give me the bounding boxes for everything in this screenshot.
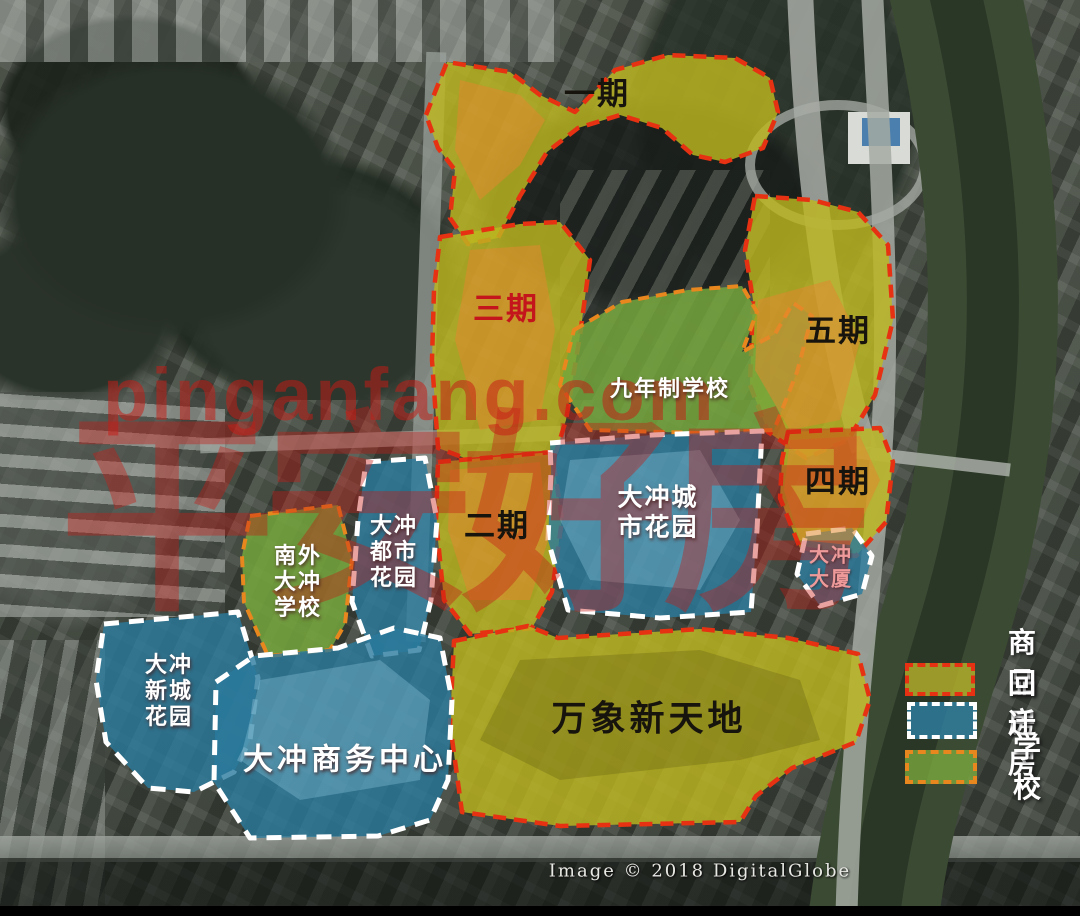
zone-label-phase1: 一期	[564, 77, 630, 114]
imagery-credit: Image © 2018 DigitalGlobe	[549, 861, 851, 882]
satellite-map: pinganfang.com 平安好房 一期 三期 五期 九年制学校 二期 大冲…	[0, 0, 1080, 916]
zone-label-business-center: 大冲商务中心	[243, 742, 447, 777]
bottom-black-bar	[0, 906, 1080, 916]
legend-label-school: 学校	[1013, 726, 1043, 806]
legend-swatch-commodity	[905, 663, 975, 696]
legend-swatch-school	[905, 750, 977, 784]
zone-label-phase2: 二期	[464, 509, 530, 546]
zone-label-mixc-world: 万象新天地	[551, 698, 746, 739]
zone-label-nanwai-school: 南外 大冲 学校	[274, 543, 322, 621]
mottle-business-center	[240, 660, 430, 800]
zone-label-city-garden: 大冲城 市花园	[617, 484, 698, 543]
zone-label-phase5: 五期	[805, 314, 871, 351]
zone-label-newtown-garden: 大冲 新城 花园	[145, 652, 193, 730]
legend-swatch-relocation	[907, 702, 977, 739]
zone-label-phase4: 四期	[805, 465, 871, 502]
zone-label-dachong-tower: 大冲 大厦	[809, 544, 853, 591]
zone-label-nine-year-school: 九年制学校	[610, 376, 730, 402]
zone-label-metro-garden: 大冲 都市 花园	[370, 513, 418, 591]
zone-label-phase3: 三期	[473, 292, 539, 329]
